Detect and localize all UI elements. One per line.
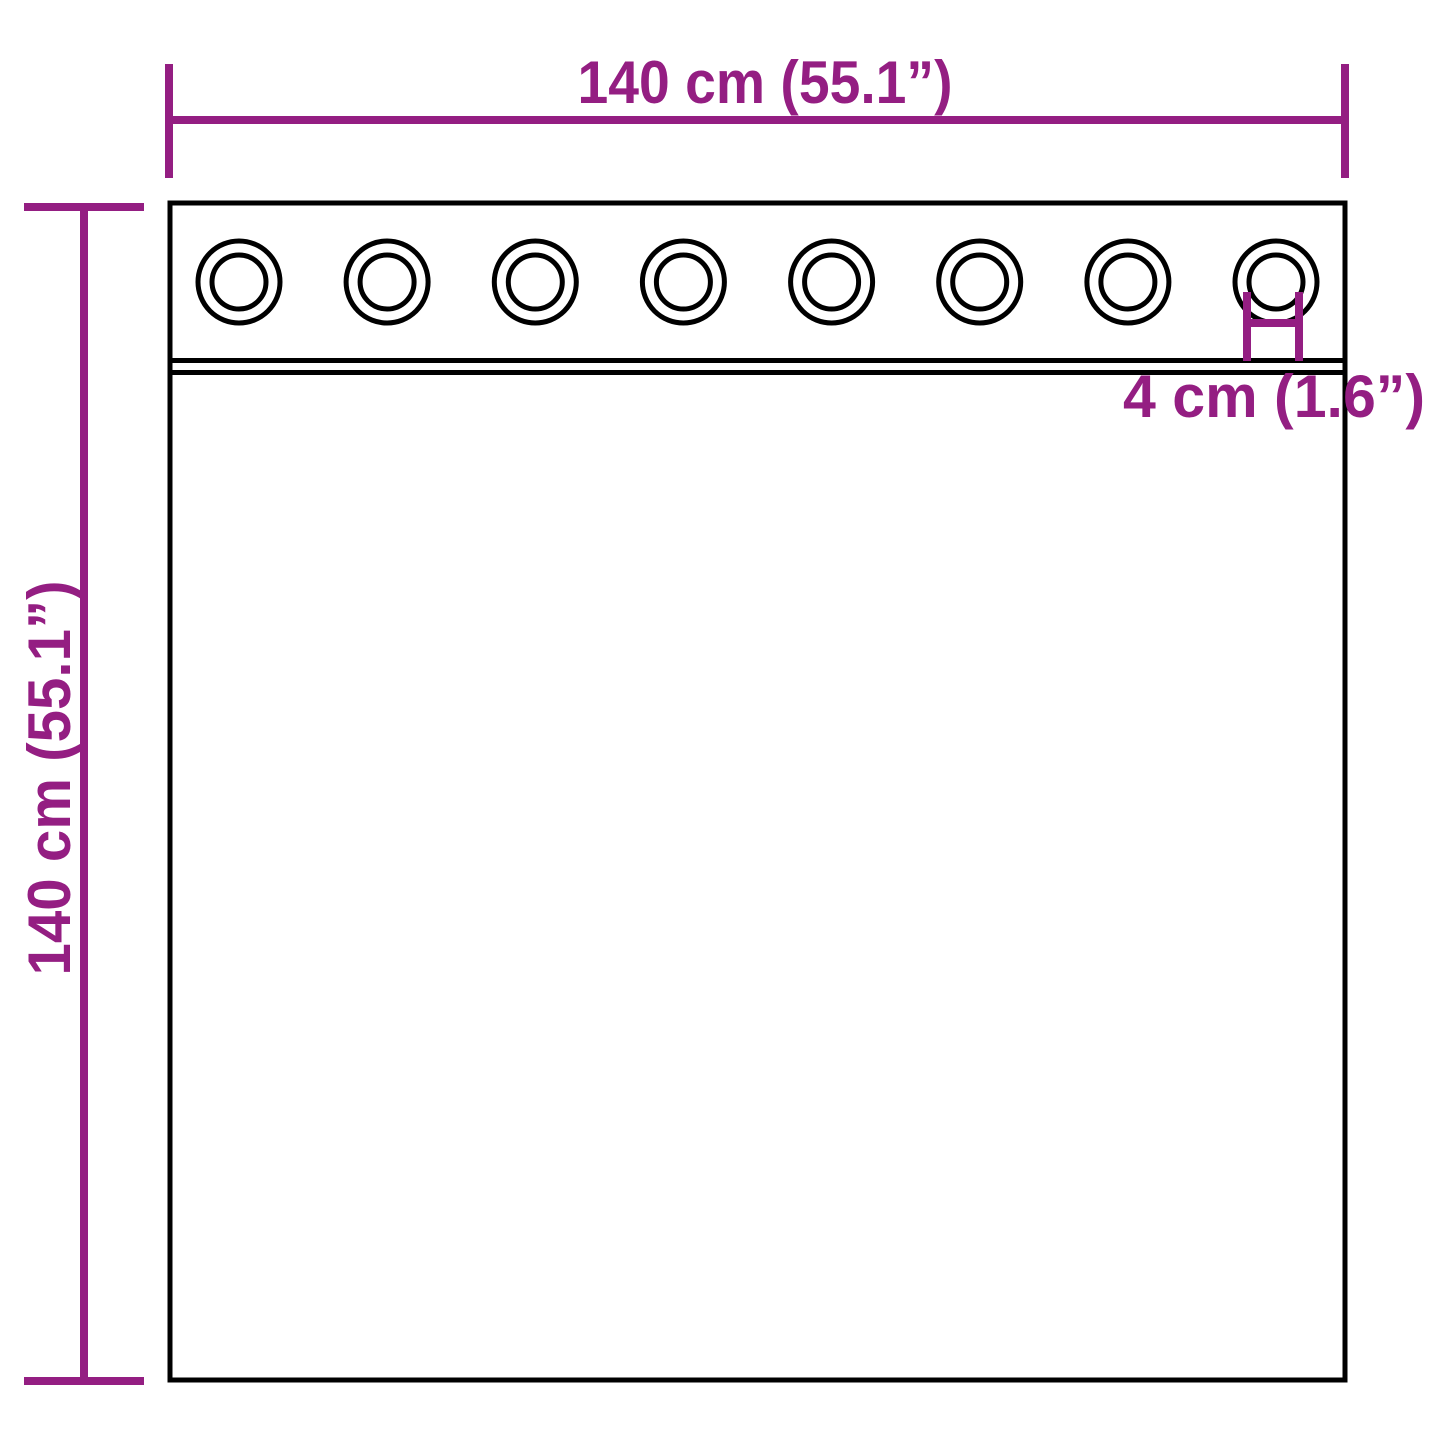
width-dimension: 140 cm (55.1”) [165,49,1349,178]
diagram-canvas: 140 cm (55.1”) 140 cm (55.1”) 4 cm (1.6”… [0,0,1445,1445]
grommet-dimension-label: 4 cm (1.6”) [1123,363,1425,430]
curtain-dimension-diagram: 140 cm (55.1”) 140 cm (55.1”) 4 cm (1.6”… [0,0,1445,1445]
width-dimension-label: 140 cm (55.1”) [578,49,953,116]
height-dimension: 140 cm (55.1”) [16,207,144,1381]
height-dimension-label: 140 cm (55.1”) [16,581,83,976]
